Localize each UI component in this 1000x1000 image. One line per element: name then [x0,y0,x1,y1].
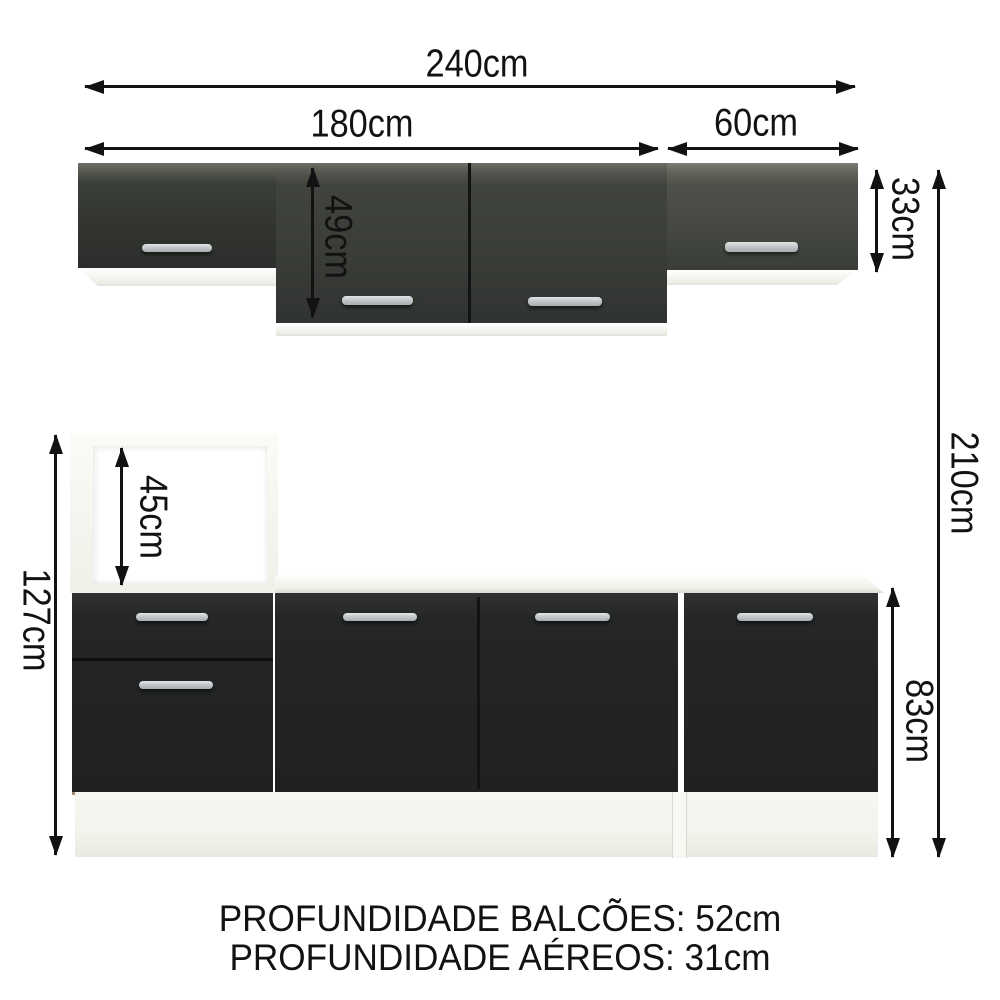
run-width-label: 180cm [310,105,413,144]
base-cabinet-right-front [684,593,878,792]
wall-cabinet-center-door-divider [468,163,471,323]
tall-base-unit-drawer-handle [136,613,208,621]
depth-note-balcoes: PROFUNDIDADE BALCÕES: 52cm [25,899,975,938]
tall-wall-cabinet-height-label: 49cm [319,195,358,279]
niche-height-label: 45cm [134,475,173,559]
wall-cabinet-left [78,163,276,268]
tall-wall-cabinet-height-arrow-icon [311,168,314,317]
tall-base-unit-height-label: 127cm [17,568,56,671]
run-width-arrow-icon [85,147,658,150]
wall-cabinet-center-underside [276,323,667,336]
tall-base-unit-door-handle [139,681,213,689]
tall-base-unit-front [72,593,273,792]
wall-cabinet-height-arrow-icon [875,170,878,272]
plinth-leg [672,792,687,858]
wall-cabinet-left-handle [142,244,212,252]
base-unit-height-label: 83cm [900,679,939,763]
kitchen-dimension-diagram: 240cm 180cm 60cm 49cm 33cm 210cm 45cm 12… [0,0,1000,1000]
wall-cabinet-right-underside [667,270,858,285]
base-cabinet-right-handle [737,613,813,621]
base-unit-height-arrow-icon [891,588,894,857]
total-height-label: 210cm [945,431,984,534]
total-width-label: 240cm [425,45,528,84]
depth-note-aereos: PROFUNDIDADE AÉREOS: 31cm [25,938,975,977]
depth-notes: PROFUNDIDADE BALCÕES: 52cm PROFUNDIDADE … [0,899,1000,977]
wall-cabinet-right-handle [725,242,798,252]
right-cabinet-width-arrow-icon [668,147,858,150]
wall-cabinet-height-label: 33cm [886,177,925,261]
base-cabinet-door2-handle [535,613,610,621]
countertop [275,575,884,593]
right-cabinet-width-label: 60cm [714,104,798,143]
total-width-arrow-icon [85,85,855,88]
wall-cabinet-center-right-handle [528,297,602,306]
plinth [75,792,878,857]
tall-base-unit-divider [72,658,273,661]
base-cabinet-door1-handle [343,613,417,621]
wall-cabinet-center-left-handle [342,296,413,305]
niche-height-arrow-icon [120,448,123,585]
wall-cabinet-right [667,163,858,270]
wall-cabinet-left-underside [78,268,276,286]
base-cabinet-door-divider [477,597,480,789]
